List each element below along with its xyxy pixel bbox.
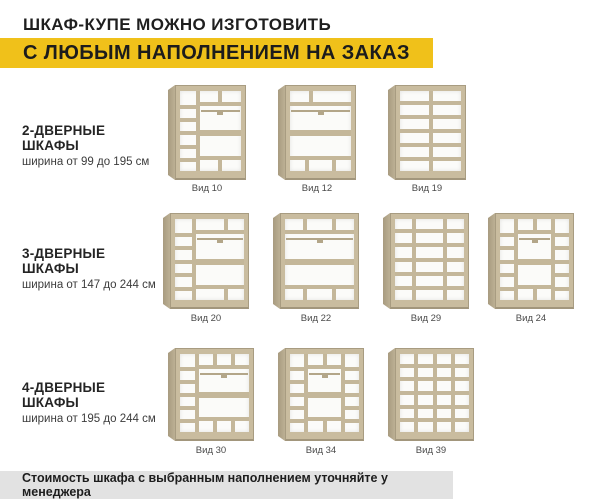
wardrobe-side-panel [383, 213, 390, 309]
wardrobe-side-panel [273, 213, 280, 309]
wardrobe-diagram-vid-34 [278, 348, 364, 441]
wardrobe-label: Вид 10 [168, 183, 246, 194]
category-width-range: ширина от 195 до 244 см [22, 413, 162, 425]
hanging-rod [199, 369, 249, 392]
wardrobe-diagram-vid-30 [168, 348, 254, 441]
wardrobe-label: Вид 22 [273, 313, 359, 324]
category-name: 2-ДВЕРНЫЕ ШКАФЫ [22, 123, 162, 153]
wardrobe-side-panel [388, 85, 395, 180]
wardrobe-label: Вид 34 [278, 445, 364, 456]
wardrobe-label: Вид 19 [388, 183, 466, 194]
flyer-page: ШКАФ-КУПЕ МОЖНО ИЗГОТОВИТЬ С ЛЮБЫМ НАПОЛ… [0, 0, 600, 500]
wardrobe-side-panel [278, 85, 285, 180]
wardrobe-diagram-vid-22 [273, 213, 359, 309]
hanging-rod [196, 234, 244, 258]
wardrobe-label: Вид 12 [278, 183, 356, 194]
category-name: 4-ДВЕРНЫЕ ШКАФЫ [22, 380, 162, 410]
category-width-range: ширина от 99 до 195 см [22, 156, 162, 168]
page-title: ШКАФ-КУПЕ МОЖНО ИЗГОТОВИТЬ [23, 15, 331, 35]
wardrobe-diagram-vid-29 [383, 213, 469, 309]
wardrobe-label: Вид 39 [388, 445, 474, 456]
category-3-door: 3-ДВЕРНЫЕ ШКАФЫ ширина от 147 до 244 см [22, 246, 162, 291]
wardrobe-diagram-vid-20 [163, 213, 249, 309]
wardrobe-label: Вид 30 [168, 445, 254, 456]
hanging-rod [290, 106, 351, 130]
category-name: 3-ДВЕРНЫЕ ШКАФЫ [22, 246, 162, 276]
hanging-rod [308, 369, 340, 392]
wardrobe-diagram-vid-19 [388, 85, 466, 180]
wardrobe-side-panel [168, 85, 175, 180]
highlight-banner-text: С ЛЮБЫМ НАПОЛНЕНИЕМ НА ЗАКАЗ [0, 42, 410, 65]
wardrobe-label: Вид 29 [383, 313, 469, 324]
wardrobe-side-panel [163, 213, 170, 309]
footer-note-bar: Стоимость шкафа с выбранным наполнением … [0, 471, 453, 499]
hanging-rod [200, 106, 241, 130]
wardrobe-label: Вид 24 [488, 313, 574, 324]
hanging-rod [285, 234, 354, 258]
highlight-banner: С ЛЮБЫМ НАПОЛНЕНИЕМ НА ЗАКАЗ [0, 38, 433, 68]
wardrobe-diagram-vid-10 [168, 85, 246, 180]
category-width-range: ширина от 147 до 244 см [22, 279, 162, 291]
wardrobe-side-panel [488, 213, 495, 309]
wardrobe-side-panel [168, 348, 175, 441]
wardrobe-side-panel [388, 348, 395, 441]
category-2-door: 2-ДВЕРНЫЕ ШКАФЫ ширина от 99 до 195 см [22, 123, 162, 168]
footer-note: Стоимость шкафа с выбранным наполнением … [0, 471, 453, 499]
wardrobe-side-panel [278, 348, 285, 441]
hanging-rod [518, 234, 550, 258]
wardrobe-diagram-vid-24 [488, 213, 574, 309]
wardrobe-diagram-vid-12 [278, 85, 356, 180]
category-4-door: 4-ДВЕРНЫЕ ШКАФЫ ширина от 195 до 244 см [22, 380, 162, 425]
wardrobe-label: Вид 20 [163, 313, 249, 324]
wardrobe-diagram-vid-39 [388, 348, 474, 441]
